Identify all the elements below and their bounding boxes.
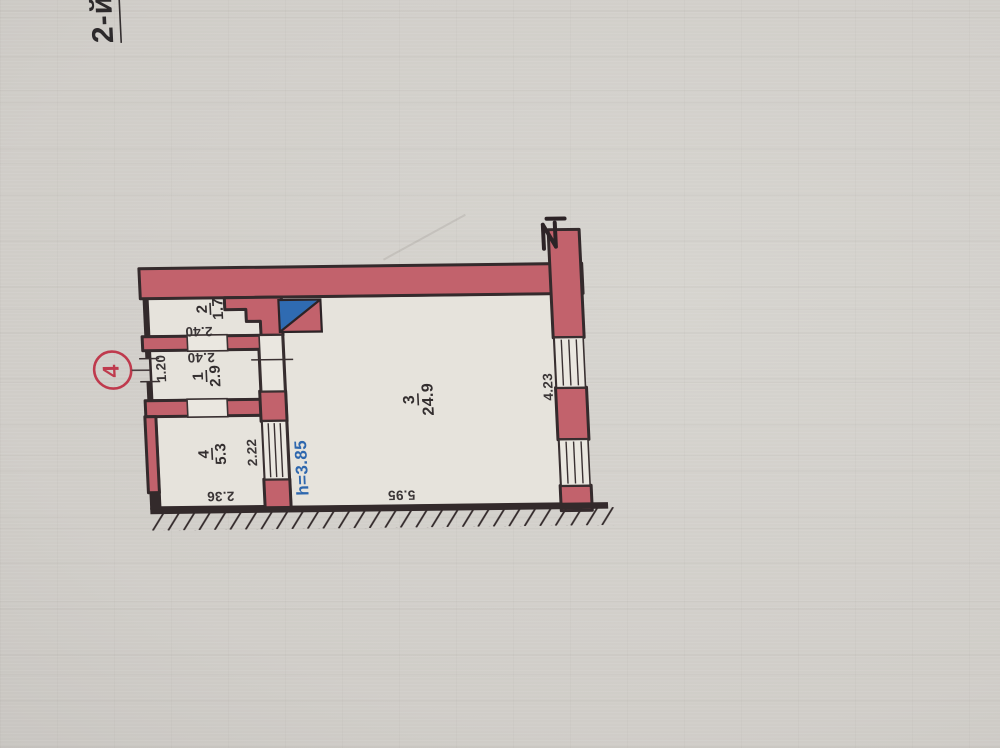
window-right-lower	[559, 439, 590, 485]
scanned-paper-background: 4 2-й 2 1.7 1 2.9 3 24.9	[0, 0, 1000, 748]
wall-interior-mid-segment	[260, 391, 287, 421]
room-1-number: 1	[190, 372, 207, 381]
floor-label: 2-й	[85, 0, 120, 43]
apartment-number-label: 4	[97, 364, 124, 377]
dim-room4-depth: 2.22	[244, 439, 260, 467]
wall-interior-bottom-segment	[264, 479, 291, 509]
room-3-number: 3	[401, 395, 418, 405]
window-right-upper	[554, 337, 585, 387]
wall-left-room2	[145, 299, 147, 337]
wall-left-room4	[145, 417, 160, 493]
dim-room1-width: 2.40	[187, 350, 215, 365]
dim-room2-width: 2.40	[185, 324, 213, 339]
window-interior-room4-room3	[262, 421, 289, 479]
room-3-area: 24.9	[419, 383, 438, 416]
room-2-number: 2	[194, 304, 211, 313]
plan-tilt-group: 4 2-й 2 1.7 1 2.9 3 24.9	[76, 0, 616, 531]
dim-room4-width: 2.36	[206, 489, 234, 504]
wall-left-bottom-corner	[149, 492, 161, 510]
wall-right-mid-segment	[556, 387, 589, 439]
dim-room1-depth: 1.20	[153, 355, 169, 383]
dim-room3-depth: 4.23	[540, 373, 556, 401]
floor-plan-drawing: 4 2-й 2 1.7 1 2.9 3 24.9	[0, 0, 1000, 748]
room-4-area: 5.3	[212, 443, 230, 465]
floor-label-group: 2-й	[85, 0, 121, 43]
door-opening-room1-room3	[259, 335, 285, 391]
room-1-area: 2.9	[206, 365, 224, 387]
dim-room3-width: 5.95	[387, 487, 415, 502]
room-4-number: 4	[195, 449, 212, 458]
vent-shaft-symbol	[278, 300, 321, 333]
door-opening-room1-room4	[187, 399, 228, 417]
apartment-badge: 4	[93, 351, 150, 389]
ceiling-height-note: h=3.85	[291, 440, 313, 496]
paper-crease	[381, 215, 467, 260]
wall-top	[139, 263, 583, 298]
dimension-tick-door	[251, 359, 293, 360]
room-2-area: 1.7	[209, 298, 227, 320]
wall-left-room1-lower	[149, 382, 150, 401]
